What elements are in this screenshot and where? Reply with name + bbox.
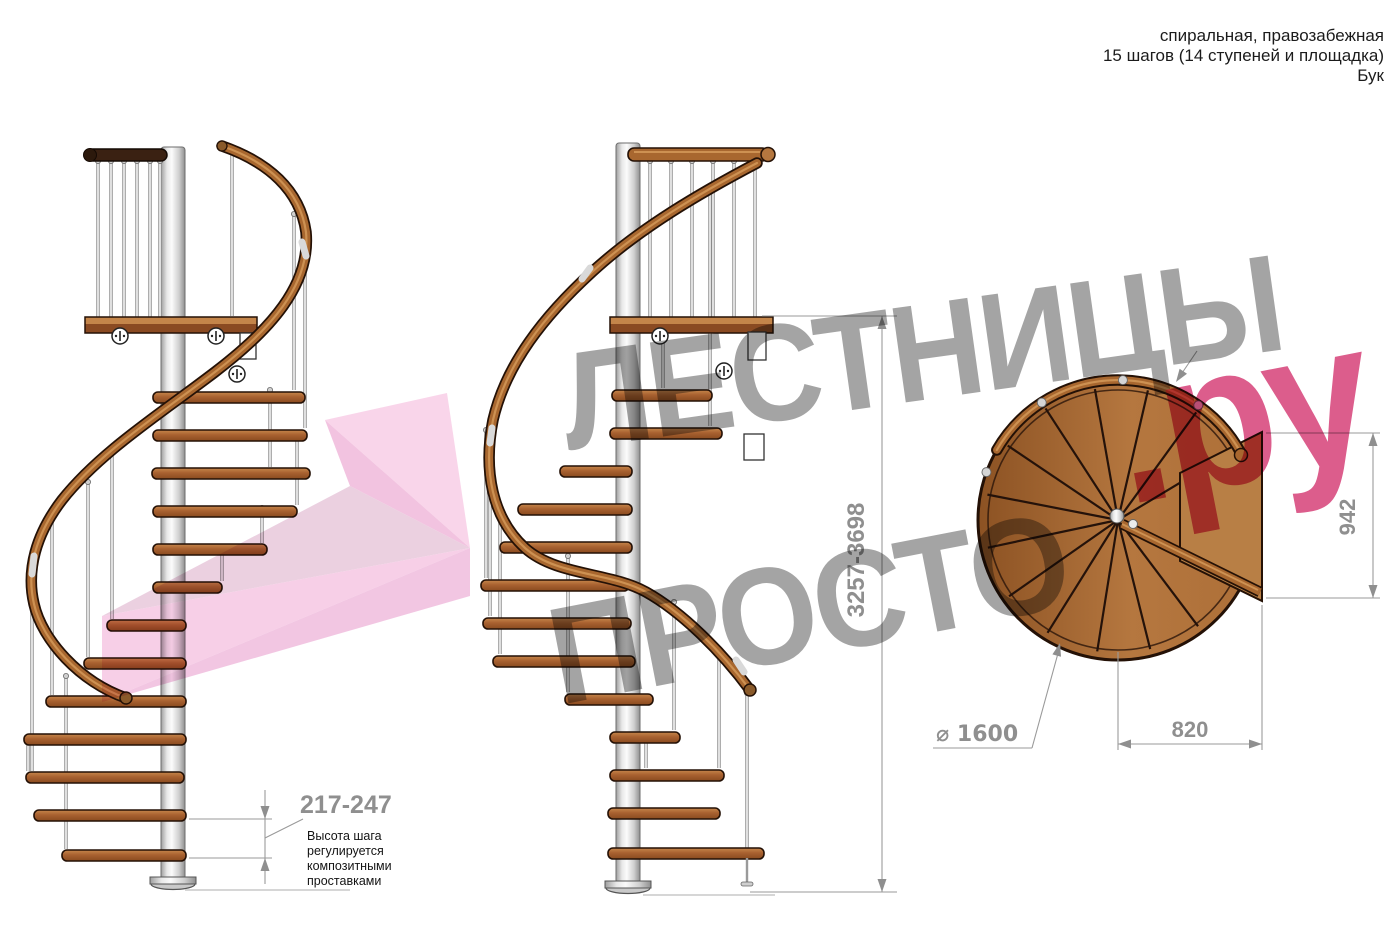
diameter-value: ⌀ 1600 (936, 722, 1018, 747)
plan-depth-value: 942 (1335, 499, 1360, 536)
step-height-value: 217-247 (300, 791, 392, 819)
title-line-steps: 15 шагов (14 ступеней и площадка) (1103, 46, 1384, 66)
total-height-value: 3257-3698 (843, 503, 870, 618)
title-line-material: Бук (1103, 66, 1384, 86)
title-block: спиральная, правозабежная 15 шагов (14 с… (1103, 26, 1384, 86)
staircase-top-view (978, 376, 1262, 660)
plan-center-pole-cap (1110, 509, 1124, 523)
step-height-note: Высота шага регулируется композитными пр… (307, 829, 392, 889)
spiral-staircase-elevation-middle (481, 143, 775, 894)
staircase-drawing-canvas: 3257-3698 217-247 942 820 ⌀ 1600 (0, 0, 1400, 939)
dimension-diameter: ⌀ 1600 (933, 643, 1061, 748)
leader-arrow-top (1176, 351, 1197, 382)
plan-width-value: 820 (1172, 717, 1209, 742)
title-line-type: спиральная, правозабежная (1103, 26, 1384, 46)
spiral-staircase-elevation-left (24, 141, 310, 890)
dimension-plan-depth: 942 (1266, 433, 1380, 598)
plan-rail-fitting (1129, 520, 1138, 529)
staircase-technical-drawing: 3257-3698 217-247 942 820 ⌀ 1600 (0, 0, 1400, 939)
dimension-total-height: 3257-3698 (750, 316, 897, 892)
